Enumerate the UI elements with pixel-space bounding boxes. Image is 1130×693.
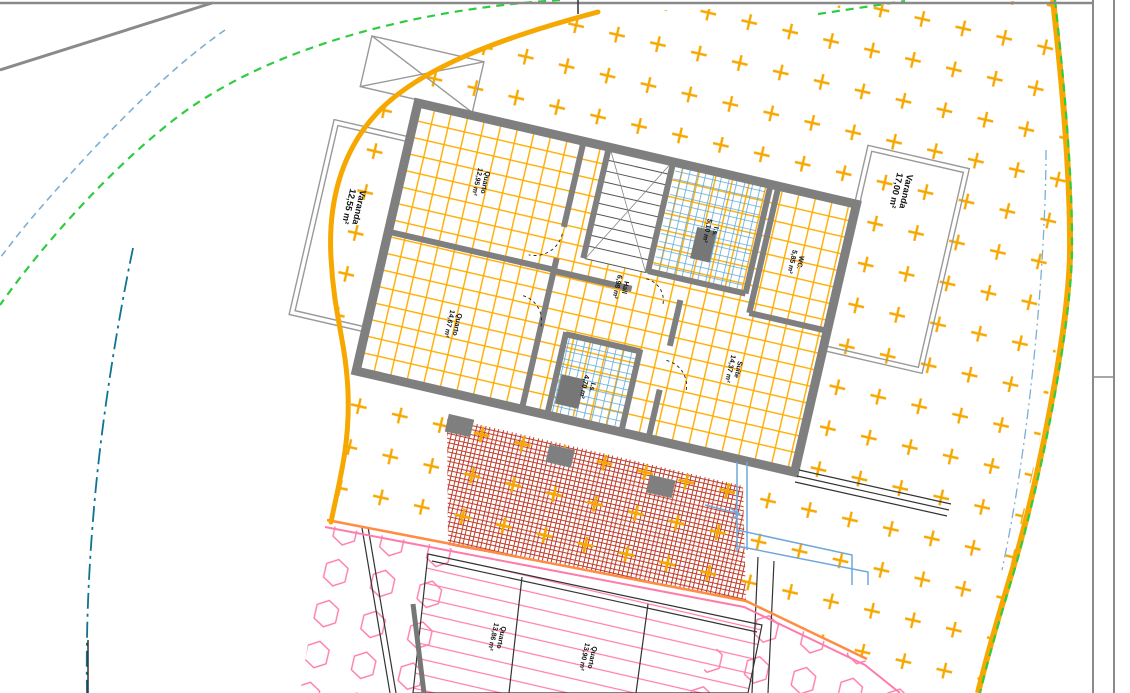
floor-plan-canvas: Varanda 12,55 m² Varanda 17,00 m² Quarto… bbox=[0, 0, 1130, 693]
blue-dashed-contour bbox=[0, 30, 225, 258]
frame-diagonal-line bbox=[0, 3, 212, 70]
teal-dashdot-contour bbox=[87, 248, 133, 693]
floor-plan-drawing: Varanda 12,55 m² Varanda 17,00 m² Quarto… bbox=[0, 0, 1130, 693]
